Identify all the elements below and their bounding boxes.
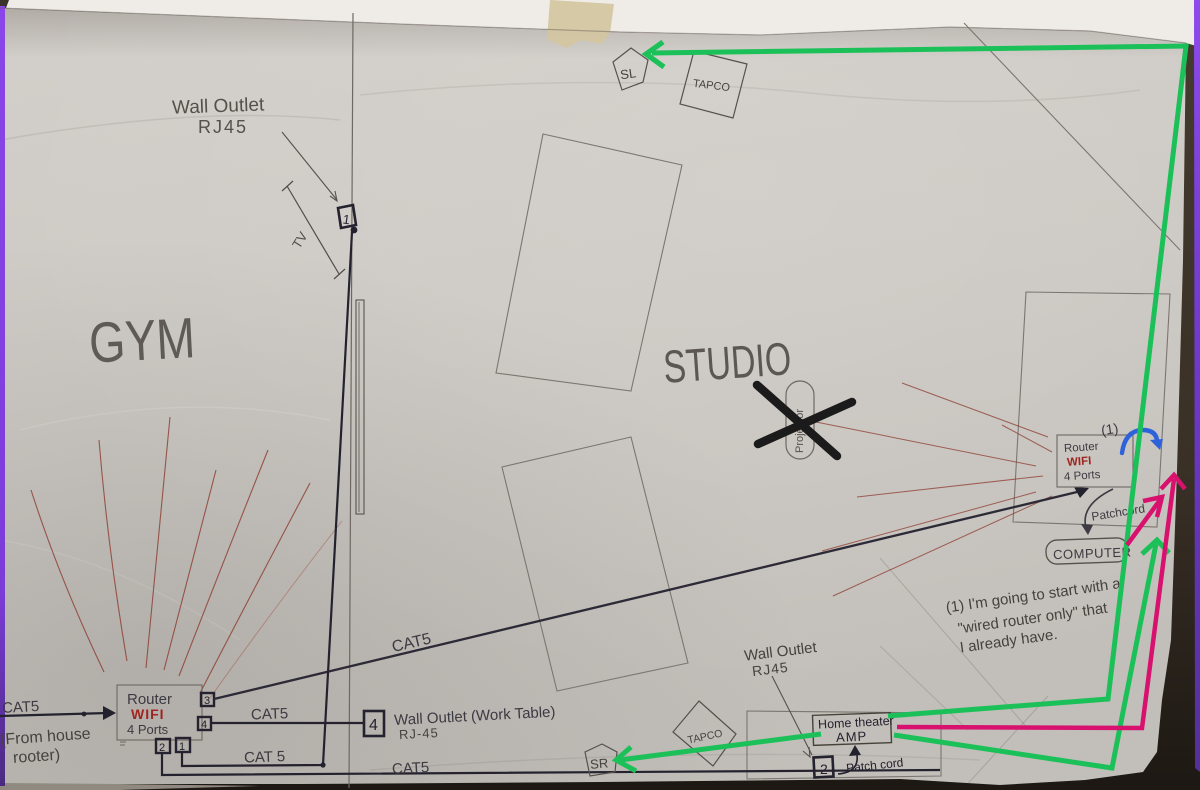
- svg-text:GYM: GYM: [87, 306, 196, 375]
- svg-text:CAT5: CAT5: [2, 698, 40, 717]
- svg-text:1: 1: [179, 741, 185, 753]
- svg-text:(1): (1): [1100, 420, 1119, 438]
- svg-text:2: 2: [159, 742, 165, 754]
- svg-text:RJ45: RJ45: [198, 117, 248, 137]
- svg-text:4: 4: [369, 717, 378, 734]
- svg-text:CAT5: CAT5: [392, 759, 430, 778]
- svg-text:4 Ports: 4 Ports: [1064, 469, 1101, 484]
- svg-text:WIFI: WIFI: [1067, 455, 1092, 469]
- svg-text:COMPUTER: COMPUTER: [1053, 544, 1132, 562]
- svg-text:RJ-45: RJ-45: [399, 725, 439, 742]
- svg-text:CAT 5: CAT 5: [244, 748, 286, 766]
- svg-text:CAT5: CAT5: [251, 705, 289, 723]
- svg-text:AMP: AMP: [836, 728, 868, 745]
- svg-text:2: 2: [820, 761, 828, 777]
- svg-text:SL: SL: [619, 65, 637, 82]
- svg-text:Wall Outlet: Wall Outlet: [172, 94, 266, 118]
- svg-text:4 Ports: 4 Ports: [127, 722, 169, 737]
- svg-text:STUDIO: STUDIO: [662, 332, 793, 393]
- svg-text:SR: SR: [590, 755, 609, 772]
- svg-text:rooter): rooter): [13, 747, 61, 767]
- svg-text:3: 3: [204, 695, 210, 707]
- svg-text:WIFI: WIFI: [131, 706, 165, 722]
- svg-text:Router: Router: [1064, 441, 1099, 455]
- svg-text:4: 4: [201, 719, 207, 731]
